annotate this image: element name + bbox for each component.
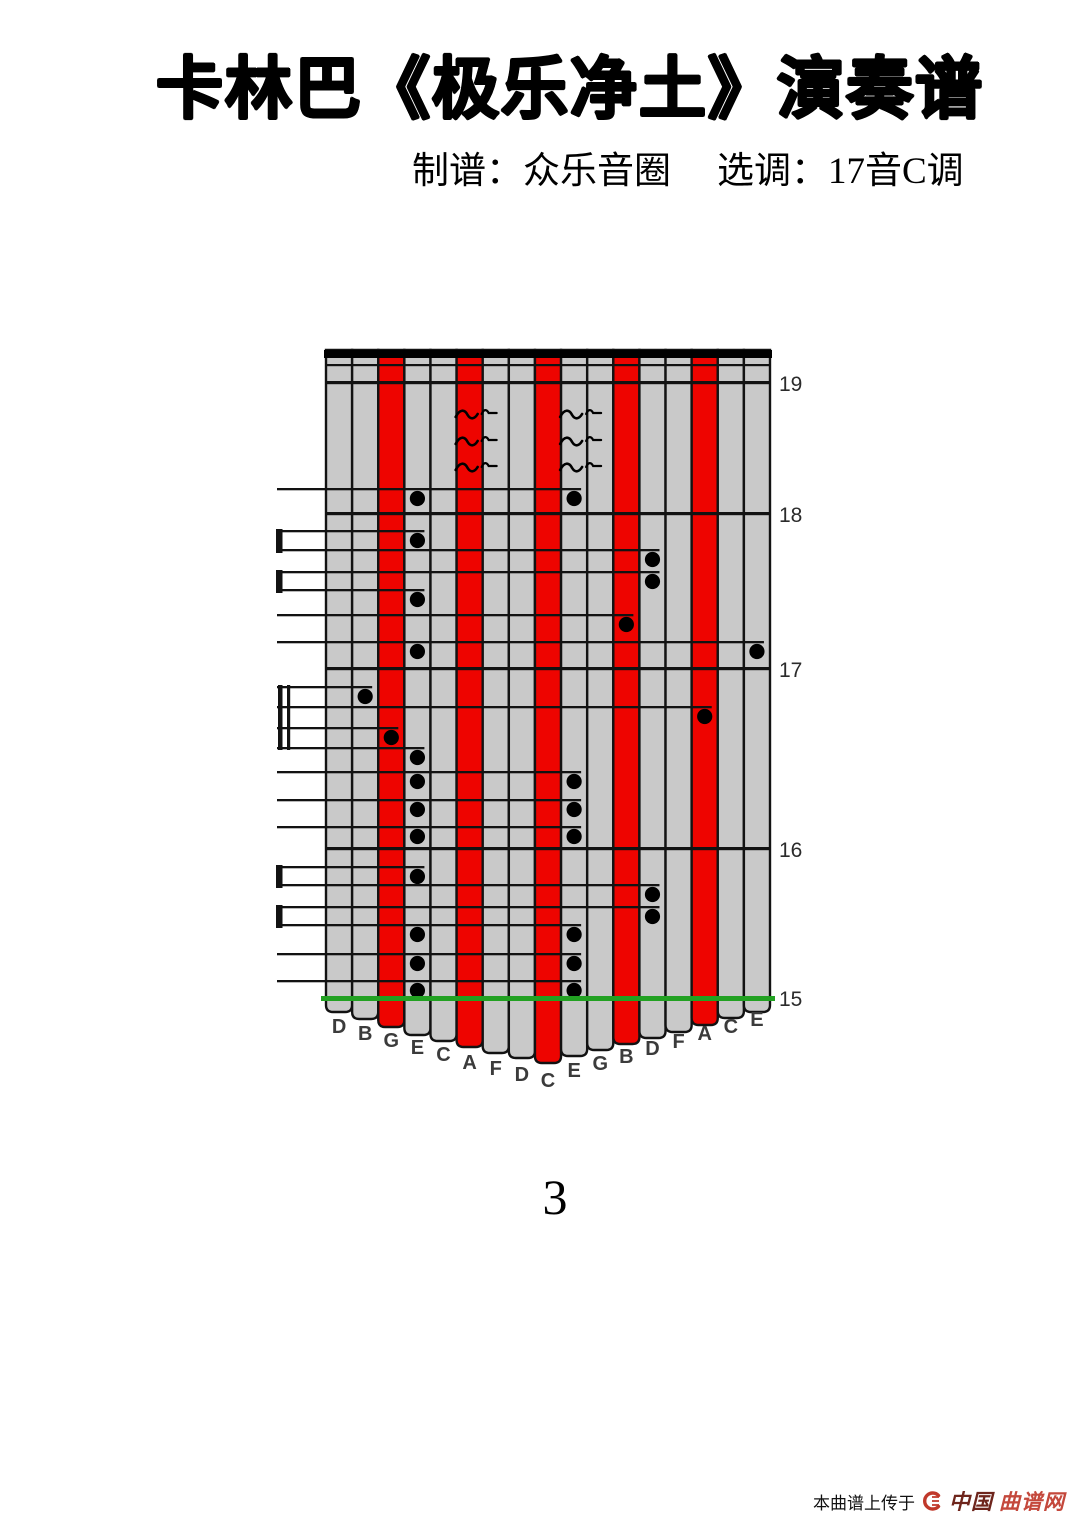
tine-letter: C (436, 1044, 450, 1066)
note-dot (645, 552, 660, 567)
tine-letter: E (750, 1009, 763, 1031)
kalimba-chart-svg: 1918171615DBGECAFDCEGBDFACE (0, 0, 1080, 1110)
tine-letter: C (541, 1070, 555, 1092)
note-dot (410, 983, 425, 998)
rhythm-stem-line (277, 953, 581, 955)
note-dot (567, 829, 582, 844)
kalimba-column-d-8 (509, 350, 535, 1058)
measure-line (325, 847, 771, 850)
rhythm-stem-line (277, 614, 633, 616)
rhythm-stem-line (277, 706, 712, 708)
measure-line (325, 667, 771, 670)
note-dot (410, 956, 425, 971)
measure-number: 16 (779, 839, 802, 862)
note-dot (645, 887, 660, 902)
rhythm-stem-line (277, 641, 764, 643)
watermark: 本曲谱上传于 中国 曲谱网 (813, 1486, 1065, 1516)
rhythm-stem-line (277, 884, 659, 886)
rhythm-stem-line (277, 530, 424, 532)
tine-letter: C (724, 1016, 738, 1038)
kalimba-column-c-16 (718, 350, 744, 1018)
tine-letter: E (411, 1037, 424, 1059)
tine-letter: E (567, 1060, 580, 1082)
tine-letter: F (490, 1058, 502, 1080)
note-dot (567, 983, 582, 998)
rhythm-stem-line (277, 980, 581, 982)
watermark-site-bold: 中国 (949, 1486, 993, 1516)
measure-number: 15 (779, 988, 802, 1011)
rhythm-stem-line (277, 589, 424, 591)
tine-letter: F (672, 1031, 684, 1053)
rhythm-stem-line (277, 924, 581, 926)
tine-letter: D (332, 1016, 346, 1038)
kalimba-column-c-5 (430, 350, 456, 1041)
note-dot (619, 617, 634, 632)
note-dot (749, 644, 764, 659)
note-dot (358, 689, 373, 704)
note-dot (410, 533, 425, 548)
tine-letter: D (515, 1064, 529, 1086)
chart-top-line (325, 364, 771, 366)
note-dot (410, 644, 425, 659)
measure-number: 17 (779, 659, 802, 682)
duration-bracket (276, 570, 283, 593)
kalimba-column-a-6 (457, 350, 483, 1047)
rhythm-stem-line (277, 549, 659, 551)
rhythm-stem-line (277, 866, 424, 868)
kalimba-column-f-14 (666, 350, 692, 1032)
tine-letter: A (697, 1023, 711, 1045)
note-dot (645, 574, 660, 589)
rhythm-stem-line (277, 686, 372, 688)
duration-bracket (276, 865, 283, 888)
note-dot (410, 829, 425, 844)
rhythm-stem-line (277, 771, 581, 773)
note-dot (567, 802, 582, 817)
note-dot (410, 750, 425, 765)
tine-letter: G (592, 1053, 608, 1075)
kalimba-column-a-15 (692, 350, 718, 1025)
note-dot (410, 592, 425, 607)
note-dot (567, 927, 582, 942)
note-dot (567, 491, 582, 506)
kalimba-column-e-10 (561, 350, 587, 1056)
kalimba-column-g-11 (587, 350, 613, 1050)
rhythm-stem-line (277, 906, 659, 908)
rhythm-stem-line (277, 826, 581, 828)
watermark-prefix: 本曲谱上传于 (813, 1489, 915, 1514)
note-dot (697, 709, 712, 724)
rhythm-stem-line (277, 799, 581, 801)
note-dot (410, 774, 425, 789)
duration-bracket (276, 905, 283, 928)
kalimba-column-f-7 (483, 350, 509, 1053)
chart-top-bar (324, 350, 772, 358)
duration-bracket (276, 529, 283, 553)
tine-letter: D (645, 1038, 659, 1060)
note-dot (567, 956, 582, 971)
note-dot (410, 927, 425, 942)
tine-letter: B (619, 1046, 633, 1068)
watermark-site-light: 曲谱网 (999, 1486, 1065, 1516)
note-dot (645, 909, 660, 924)
beam-line (287, 685, 290, 750)
score-page: 卡林巴《极乐净土》演奏谱 制谱：众乐音圈 选调：17音C调 1918171615… (0, 0, 1080, 1528)
kalimba-column-b-2 (352, 350, 378, 1019)
note-dot (567, 774, 582, 789)
measure-line (325, 512, 771, 515)
rhythm-stem-line (277, 727, 398, 729)
measure-line-green (321, 996, 775, 1001)
tine-letter: B (358, 1023, 372, 1045)
kalimba-column-b-12 (613, 350, 639, 1044)
measure-number: 19 (779, 373, 802, 396)
rhythm-stem-line (277, 571, 659, 573)
measure-number: 18 (779, 504, 802, 527)
page-number: 3 (0, 1168, 1080, 1226)
measure-line (325, 381, 771, 384)
tine-letter: G (384, 1030, 400, 1052)
kalimba-column-d-1 (326, 350, 352, 1012)
kalimba-column-e-17 (744, 350, 770, 1012)
note-dot (384, 730, 399, 745)
rhythm-stem-line (277, 488, 581, 490)
kalimba-column-d-13 (639, 350, 665, 1038)
site-logo-icon (921, 1490, 943, 1512)
tine-letter: A (462, 1052, 476, 1074)
beam-line (278, 685, 283, 750)
rhythm-stem-line (277, 747, 424, 749)
note-dot (410, 802, 425, 817)
note-dot (410, 491, 425, 506)
note-dot (410, 869, 425, 884)
